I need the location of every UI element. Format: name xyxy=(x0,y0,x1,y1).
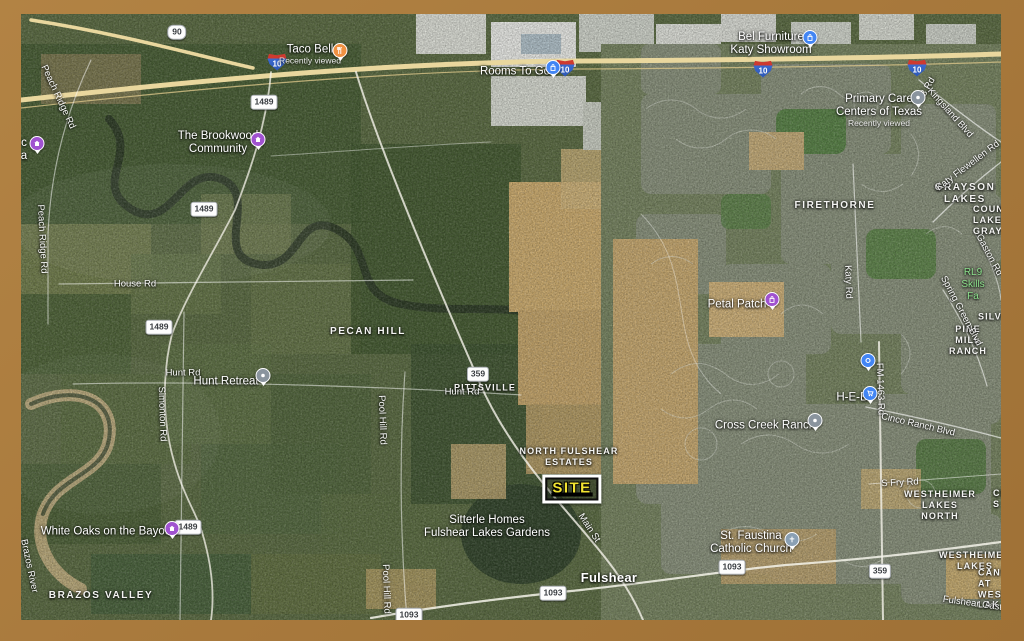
poi-name: Bel Furniture Katy Showroom xyxy=(730,31,811,57)
rooms-to-go-marker[interactable] xyxy=(546,60,561,80)
satellite-map[interactable]: 90 10 10 10 10 1489 1489 1489 1489 359 3… xyxy=(21,14,1001,620)
route-shield-1489: 1489 xyxy=(191,202,218,217)
route-shield-359: 359 xyxy=(869,564,891,579)
site-annotation: SITE xyxy=(542,475,601,504)
poi-name: Petal Patch xyxy=(708,298,767,311)
brookwood-community-marker[interactable] xyxy=(251,132,266,152)
heb-marker[interactable] xyxy=(863,386,878,406)
shield-number: 10 xyxy=(913,65,922,74)
poi-label-sitterle-homes: Sitterle Homes Fulshear Lakes Gardens xyxy=(424,514,550,540)
route-shield-1489: 1489 xyxy=(146,320,173,335)
poi-name: The Brookwood Community xyxy=(178,130,259,156)
dot-icon xyxy=(808,413,823,428)
poi-name: Rooms To Go xyxy=(480,65,550,78)
primary-care-marker[interactable] xyxy=(911,90,926,110)
route-shield-359: 359 xyxy=(467,367,489,382)
cross-creek-ranch-marker[interactable] xyxy=(808,413,823,433)
home-icon xyxy=(251,132,266,147)
route-shield-us90: 90 xyxy=(167,25,186,40)
shield-number: 10 xyxy=(759,66,768,75)
poi-label-petal-patch: Petal Patch xyxy=(708,298,767,311)
hunt-retreat-marker[interactable] xyxy=(256,368,271,388)
dot-icon xyxy=(256,368,271,383)
home-icon xyxy=(30,136,45,151)
cart-icon xyxy=(863,386,878,401)
poi-subtitle: Recently viewed xyxy=(836,119,922,129)
dot-icon xyxy=(911,90,926,105)
poi-label-edge-listing: c a xyxy=(21,137,27,163)
home-icon xyxy=(165,521,180,536)
poi-name: White Oaks on the Bayou xyxy=(41,525,171,538)
poi-label-bel-furniture: Bel Furniture Katy Showroom xyxy=(730,31,811,57)
framed-map-screenshot: { "frame": {"color": "#A97A3D"}, "site_s… xyxy=(0,0,1024,641)
white-oaks-marker[interactable] xyxy=(165,521,180,541)
church-icon xyxy=(785,532,800,547)
shield-number: 10 xyxy=(561,65,570,74)
poi-label-cross-creek-ranch: Cross Creek Ranch xyxy=(715,419,815,432)
poi-label-white-oaks: White Oaks on the Bayou xyxy=(41,525,171,538)
poi-name: Hunt Retreat xyxy=(193,375,258,388)
poi-label-rooms-to-go: Rooms To Go xyxy=(480,65,550,78)
route-shield-1093: 1093 xyxy=(396,608,423,620)
poi-label-brookwood-community: The Brookwood Community xyxy=(178,130,259,156)
poi-name: Cross Creek Ranch xyxy=(715,419,815,432)
shopping-bag-icon xyxy=(546,60,561,75)
poi-label-st-faustina: St. Faustina Catholic Church xyxy=(710,530,792,556)
site-annotation-inner: SITE xyxy=(545,478,598,501)
poi-label-hunt-retreat: Hunt Retreat xyxy=(193,375,258,388)
poi-label-primary-care: Primary Care Centers of Texas Recently v… xyxy=(836,93,922,129)
route-shield-1489: 1489 xyxy=(251,95,278,110)
route-shield-1093: 1093 xyxy=(719,560,746,575)
shopping-bag-icon xyxy=(803,30,818,45)
bel-furniture-marker[interactable] xyxy=(803,30,818,50)
business-marker[interactable] xyxy=(861,353,876,373)
poi-name: Sitterle Homes Fulshear Lakes Gardens xyxy=(424,514,550,540)
site-annotation-text: SITE xyxy=(552,480,591,497)
restaurant-icon xyxy=(333,43,348,58)
petal-patch-marker[interactable] xyxy=(765,292,780,312)
shopping-bag-icon xyxy=(765,292,780,307)
poi-name: c a xyxy=(21,137,27,163)
poi-name: Primary Care Centers of Texas xyxy=(836,93,922,119)
edge-listing-marker[interactable] xyxy=(30,136,45,156)
ring-icon xyxy=(861,353,876,368)
poi-name: St. Faustina Catholic Church xyxy=(710,530,792,556)
taco-bell-marker[interactable] xyxy=(333,43,348,63)
church-marker[interactable] xyxy=(785,532,800,552)
route-shield-1093: 1093 xyxy=(540,586,567,601)
